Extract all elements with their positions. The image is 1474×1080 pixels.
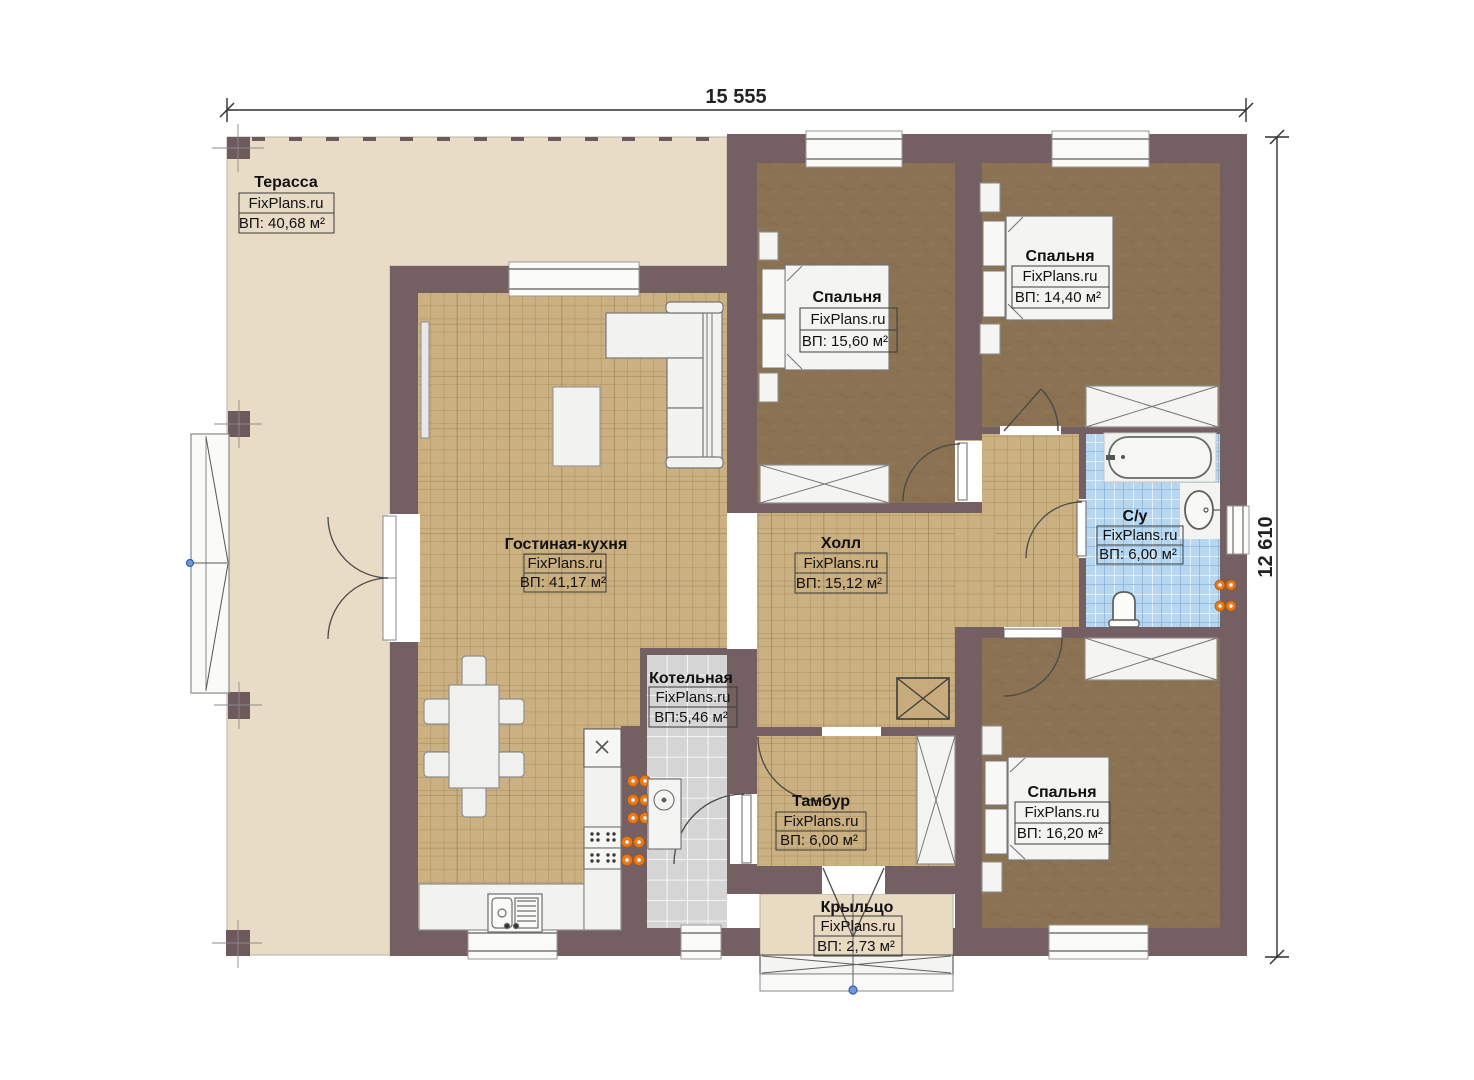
svg-text:С/у: С/у [1123, 508, 1148, 525]
svg-text:15 555: 15 555 [705, 86, 766, 108]
svg-text:FixPlans.ru: FixPlans.ru [527, 555, 602, 572]
svg-text:ВП: 41,17 м²: ВП: 41,17 м² [520, 574, 606, 591]
svg-text:ВП: 6,00 м²: ВП: 6,00 м² [1099, 546, 1177, 563]
svg-text:FixPlans.ru: FixPlans.ru [655, 689, 730, 706]
svg-text:Спальня: Спальня [1025, 248, 1094, 265]
svg-text:FixPlans.ru: FixPlans.ru [783, 813, 858, 830]
svg-text:ВП: 14,40 м²: ВП: 14,40 м² [1015, 289, 1101, 306]
svg-text:FixPlans.ru: FixPlans.ru [810, 311, 885, 328]
svg-text:ВП: 40,68 м²: ВП: 40,68 м² [239, 215, 325, 232]
svg-text:ВП:5,46 м²: ВП:5,46 м² [654, 709, 728, 726]
svg-text:FixPlans.ru: FixPlans.ru [248, 195, 323, 212]
svg-text:12 610: 12 610 [1255, 516, 1277, 577]
svg-text:Гостиная-кухня: Гостиная-кухня [505, 536, 628, 553]
svg-text:FixPlans.ru: FixPlans.ru [1102, 527, 1177, 544]
svg-text:ВП: 2,73 м²: ВП: 2,73 м² [817, 938, 895, 955]
svg-text:Спальня: Спальня [1027, 784, 1096, 801]
svg-text:FixPlans.ru: FixPlans.ru [1024, 804, 1099, 821]
svg-text:FixPlans.ru: FixPlans.ru [1022, 268, 1097, 285]
svg-text:Тамбур: Тамбур [792, 793, 850, 810]
svg-text:Терасса: Терасса [254, 174, 318, 191]
svg-text:Спальня: Спальня [812, 289, 881, 306]
svg-text:Котельная: Котельная [649, 670, 733, 687]
svg-text:FixPlans.ru: FixPlans.ru [820, 918, 895, 935]
svg-text:ВП: 15,60 м²: ВП: 15,60 м² [802, 333, 888, 350]
svg-text:FixPlans.ru: FixPlans.ru [803, 555, 878, 572]
svg-text:ВП: 16,20 м²: ВП: 16,20 м² [1017, 825, 1103, 842]
svg-text:Холл: Холл [821, 535, 861, 552]
svg-text:ВП: 6,00 м²: ВП: 6,00 м² [780, 832, 858, 849]
svg-text:ВП: 15,12 м²: ВП: 15,12 м² [796, 575, 882, 592]
svg-text:Крыльцо: Крыльцо [821, 899, 894, 916]
